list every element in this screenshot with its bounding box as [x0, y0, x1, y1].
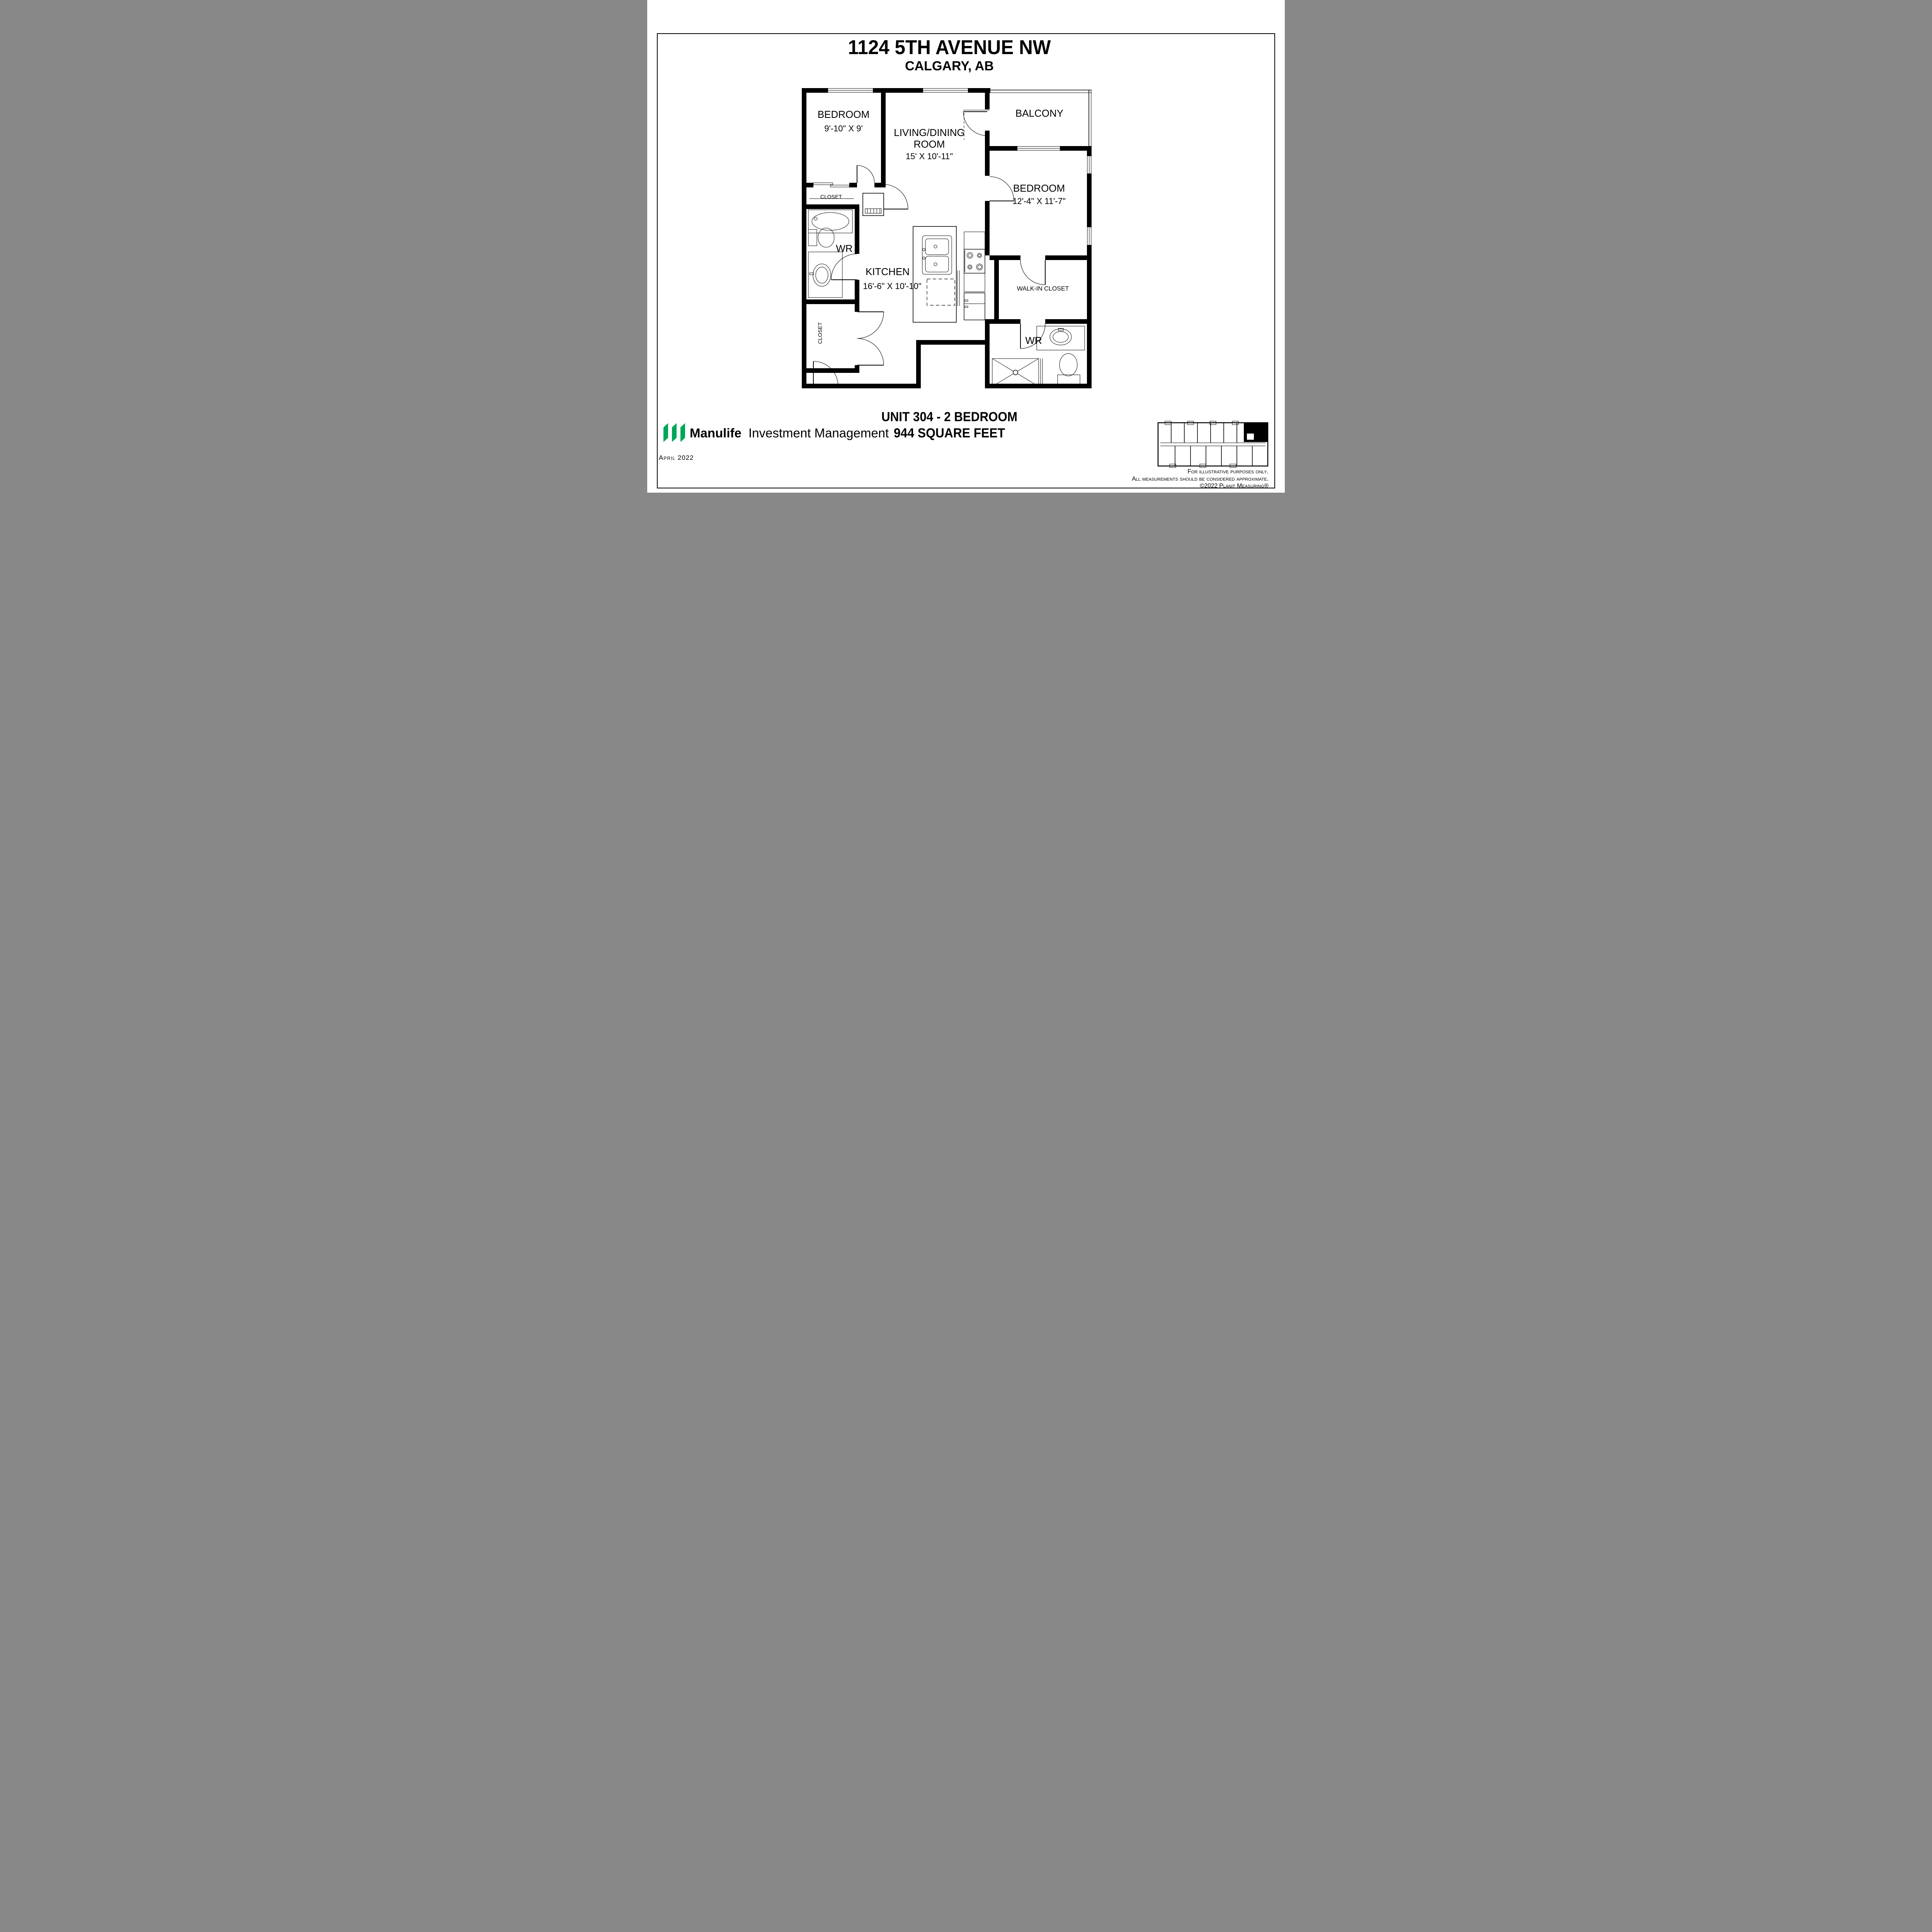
disclaimer: For illustrative purposes only. All meas… — [1132, 468, 1269, 489]
manulife-stripes-icon — [663, 423, 685, 442]
sliding-closet-door — [813, 183, 849, 187]
closet-entry-door — [857, 312, 884, 338]
washroom-ensuite-label: WR — [1025, 335, 1042, 346]
window — [1017, 146, 1060, 151]
bedroom-1-door — [857, 165, 874, 183]
living-dining-dims: 15' X 10'-11" — [906, 151, 953, 161]
toilet-icon — [1058, 354, 1080, 384]
sink-faucet-icon — [810, 273, 813, 275]
page-title: 1124 5TH AVENUE NW — [848, 36, 1051, 59]
washroom-main-door — [831, 254, 857, 280]
window — [923, 88, 968, 93]
date-stamp: April 2022 — [659, 454, 694, 461]
title-block: 1124 5TH AVENUE NW CALGARY, AB — [848, 36, 1051, 73]
disclaimer-line-3: ©2022 Planit Measuring® — [1200, 483, 1269, 489]
balcony-parapet — [990, 90, 1092, 148]
kitchen-label: KITCHEN — [866, 266, 910, 277]
unit-title: UNIT 304 - 2 BEDROOM — [881, 410, 1017, 424]
closet-entry-door — [857, 338, 884, 365]
living-dining-label-2: ROOM — [914, 138, 945, 150]
double-sink-icon — [922, 236, 952, 274]
bedroom-2-label: BEDROOM — [1013, 182, 1065, 194]
kitchen-dims: 16'-6" X 10'-10" — [863, 281, 921, 291]
stove-icon — [964, 249, 985, 273]
balcony-label: BALCONY — [1015, 107, 1063, 119]
unit-area: 944 SQUARE FEET — [894, 426, 1005, 440]
washroom-main-label: WR — [836, 243, 852, 254]
window — [1087, 227, 1092, 245]
bedroom-1-label: BEDROOM — [818, 109, 869, 120]
brand-division: Investment Management — [748, 426, 889, 440]
tub-faucet-icon — [814, 217, 817, 220]
window — [828, 88, 873, 93]
bedroom-1-dims: 9'-10" X 9' — [824, 124, 862, 133]
toilet-tank-icon — [808, 230, 817, 246]
balcony-door — [963, 110, 990, 140]
shower-icon — [992, 359, 1043, 386]
manulife-logo: Manulife Investment Management — [663, 423, 889, 442]
walk-in-closet-label: WALK-IN CLOSET — [1017, 286, 1069, 292]
laundry-unit-icon — [863, 193, 884, 216]
kitchen-fixtures — [913, 226, 985, 322]
closet-bedroom-label: CLOSET — [820, 194, 842, 200]
page-subtitle: CALGARY, AB — [905, 59, 994, 73]
closet-entry-label: CLOSET — [817, 322, 823, 344]
dishwasher-icon — [927, 279, 955, 305]
living-room-door — [883, 184, 908, 209]
room-labels: BEDROOM 9'-10" X 9' LIVING/DINING ROOM 1… — [817, 107, 1069, 346]
disclaimer-line-2: All measurements should be considered ap… — [1132, 476, 1269, 482]
window — [1087, 156, 1092, 173]
floor-plan: BEDROOM 9'-10" X 9' LIVING/DINING ROOM 1… — [802, 88, 1092, 388]
brand-name: Manulife — [690, 426, 742, 440]
vanity-counter — [1037, 326, 1085, 350]
fridge-icon — [964, 293, 985, 320]
bedroom-2-dims: 12'-4" X 11'-7" — [1012, 196, 1065, 206]
floor-plan-sheet: 1124 5TH AVENUE NW CALGARY, AB — [647, 0, 1285, 493]
walk-in-closet-door — [1020, 260, 1045, 285]
counter — [964, 273, 985, 292]
disclaimer-line-1: For illustrative purposes only. — [1187, 468, 1269, 475]
key-plan — [1158, 421, 1268, 468]
living-dining-label-1: LIVING/DINING — [894, 127, 964, 138]
bedroom-2-door — [990, 177, 1014, 201]
bathtub-icon — [812, 213, 849, 230]
unit-info: UNIT 304 - 2 BEDROOM 944 SQUARE FEET — [881, 410, 1017, 440]
counter — [964, 232, 985, 249]
entry-door — [813, 361, 838, 386]
toilet-icon — [818, 228, 834, 247]
